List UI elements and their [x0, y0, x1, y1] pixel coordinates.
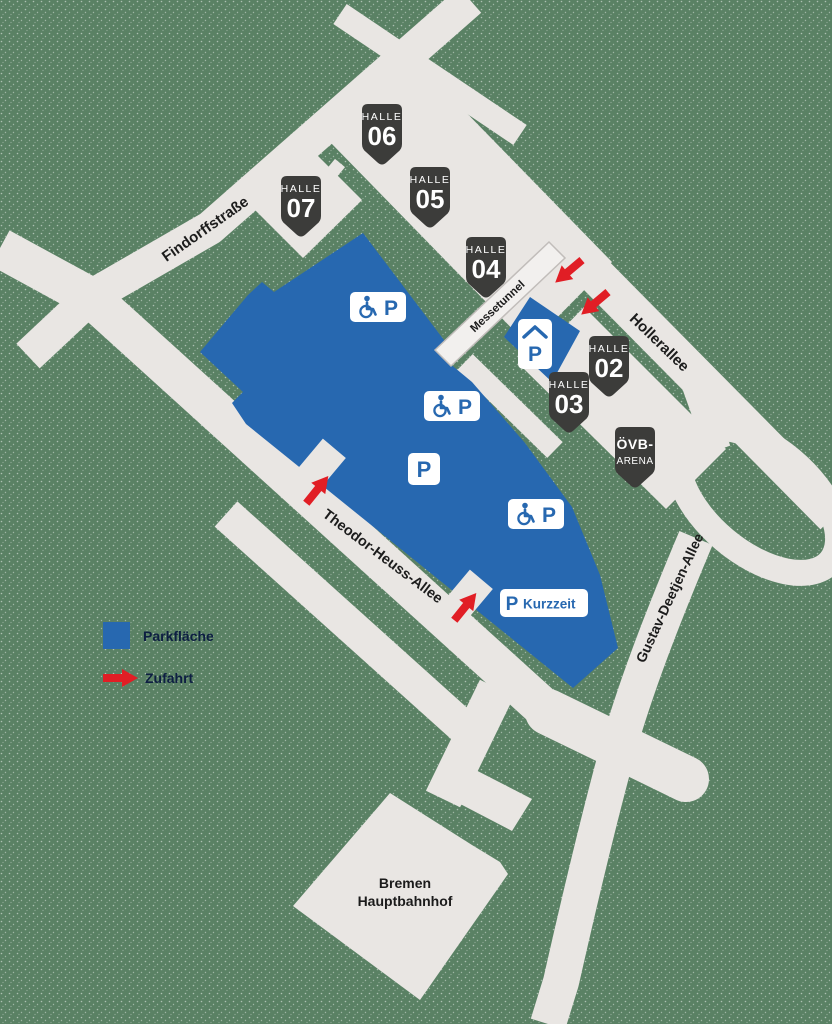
accessible-parking-badge-1: P — [350, 292, 406, 322]
legend-parking-swatch — [103, 622, 130, 649]
station-label-line2: Hauptbahnhof — [358, 893, 453, 909]
accessible-parking-badge-3: P — [508, 499, 564, 529]
map-canvas: Messetunnel Findorffstraße Theodor-Heuss… — [0, 0, 832, 1024]
parking-badge-plain: P — [408, 453, 440, 485]
legend-zufahrt-label: Zufahrt — [145, 670, 194, 686]
p-symbol: P — [417, 457, 432, 482]
arena-label-line1: ÖVB- — [617, 436, 654, 452]
p-symbol: P — [506, 594, 519, 615]
halle-04-number: 04 — [472, 254, 501, 284]
kurzzeit-label: Kurzzeit — [523, 597, 576, 612]
arena-label-line2: ARENA — [617, 456, 654, 467]
legend-parkflaeche-label: Parkfläche — [143, 628, 214, 644]
parking-map: Messetunnel Findorffstraße Theodor-Heuss… — [0, 0, 832, 1024]
station-label-line1: Bremen — [379, 875, 431, 891]
accessible-parking-badge-2: P — [424, 391, 480, 421]
halle-06-number: 06 — [368, 121, 397, 151]
halle-07-number: 07 — [287, 193, 316, 223]
p-symbol: P — [542, 504, 556, 527]
halle-02-number: 02 — [595, 353, 624, 383]
halle-03-number: 03 — [555, 389, 584, 419]
halle-05-number: 05 — [416, 184, 445, 214]
p-symbol: P — [384, 297, 398, 320]
parking-garage-badge: P — [518, 319, 552, 369]
p-symbol: P — [528, 343, 542, 366]
p-symbol: P — [458, 396, 472, 419]
kurzzeit-parking-badge: P Kurzzeit — [500, 589, 588, 617]
